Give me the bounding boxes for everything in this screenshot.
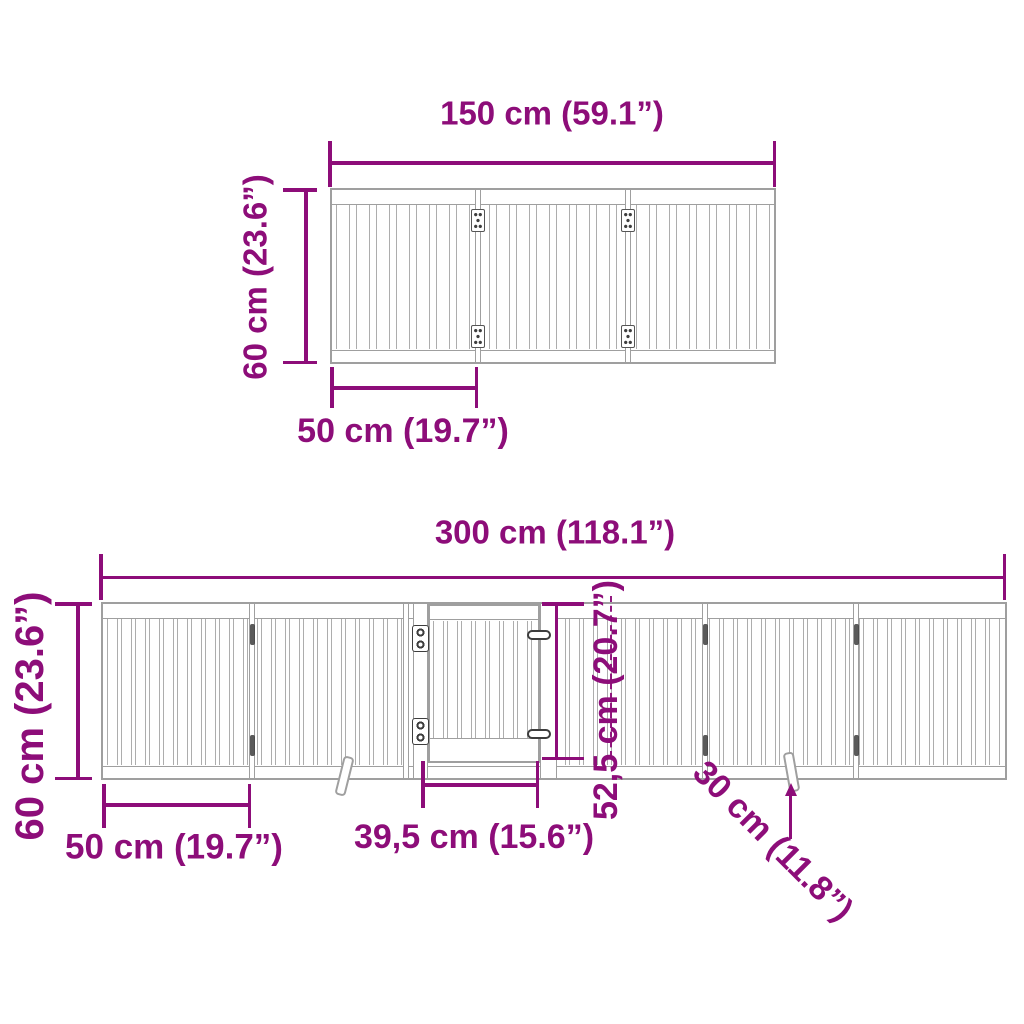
hinge-icon	[471, 209, 485, 232]
top-rail-line	[332, 204, 774, 205]
dimension-tick	[542, 757, 584, 761]
top-gate-height-label: 60 cm (23.6”)	[239, 174, 272, 379]
door-slats	[433, 621, 535, 738]
dimension-tick	[99, 554, 103, 600]
door-height-label: 52,5 cm (20.7”)	[589, 580, 623, 820]
dimension-tick	[283, 361, 317, 365]
panel-junction	[403, 604, 409, 778]
dimension-line	[328, 161, 776, 165]
door-bottom-rail-line	[430, 738, 538, 739]
hinge-icon	[854, 735, 859, 756]
dimension-tick	[55, 777, 92, 781]
gate-door	[428, 604, 540, 763]
dimension-tick	[55, 602, 92, 606]
dimension-line	[304, 188, 308, 364]
bottom-gate-width-label: 300 cm (118.1”)	[435, 516, 675, 549]
gate-slats	[336, 205, 770, 349]
dimension-tick	[421, 761, 425, 808]
door-panel	[403, 604, 557, 778]
dimension-tick	[248, 784, 252, 828]
dimension-tick	[283, 188, 317, 192]
dimension-tick	[330, 367, 334, 408]
latch-handle-icon	[527, 729, 551, 739]
hinge-icon	[250, 735, 255, 756]
hinge-icon	[854, 624, 859, 645]
dimension-line	[102, 803, 251, 807]
dimension-line	[76, 602, 80, 780]
dimension-tick	[475, 367, 479, 408]
door-width-label: 39,5 cm (15.6”)	[354, 820, 594, 854]
bottom-rail-line	[332, 350, 774, 351]
pet-gate-dimension-diagram: 150 cm (59.1”) 60 cm (23.6”) 50 cm (19.7…	[0, 0, 1024, 1024]
foot-height-label: 30 cm (11.8”)	[687, 755, 859, 927]
dimension-tick	[1003, 554, 1007, 600]
gate-body	[330, 188, 776, 364]
dimension-tick	[773, 141, 777, 187]
top-gate-panel-width-label: 50 cm (19.7”)	[297, 414, 509, 448]
dimension-tick	[102, 784, 106, 828]
hinge-icon	[621, 325, 635, 348]
dimension-line	[99, 576, 1006, 580]
arrow-up-icon	[785, 783, 797, 796]
hinge-icon	[703, 735, 708, 756]
bottom-gate-panel-width-label: 50 cm (19.7”)	[65, 830, 283, 865]
top-gate-width-label: 150 cm (59.1”)	[440, 97, 664, 130]
hinge-icon	[703, 624, 708, 645]
dimension-tick	[536, 761, 540, 808]
hinge-icon	[471, 325, 485, 348]
bottom-gate-height-label: 60 cm (23.6”)	[10, 591, 50, 840]
dimension-line	[555, 602, 559, 760]
dimension-line	[421, 783, 539, 787]
hinge-icon	[621, 209, 635, 232]
door-top-rail-line	[430, 619, 538, 620]
door-hinge-icon	[412, 718, 429, 745]
latch-handle-icon	[527, 630, 551, 640]
dimension-tick	[542, 602, 584, 606]
door-hinge-icon	[412, 625, 429, 652]
dimension-line	[330, 386, 478, 390]
dimension-tick	[328, 141, 332, 187]
hinge-icon	[250, 624, 255, 645]
